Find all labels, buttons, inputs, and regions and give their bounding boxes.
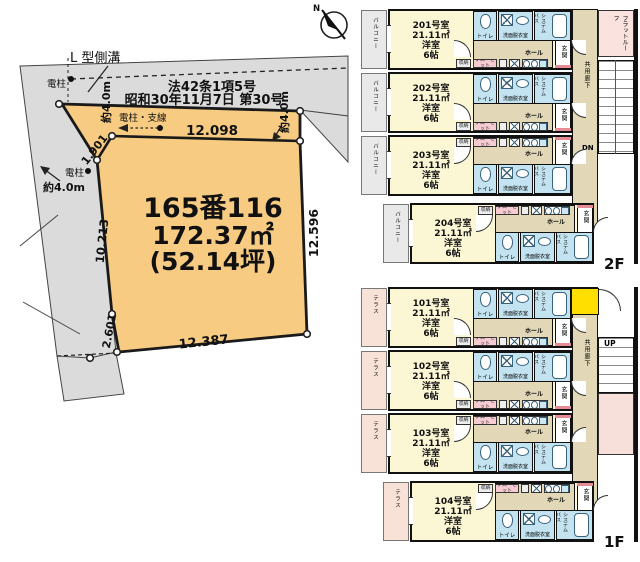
system-bath-label-line: システム <box>562 234 569 261</box>
closet-box: クローゼット <box>473 400 497 409</box>
entrance-label: 玄関 <box>580 488 590 508</box>
burner-icon <box>531 338 538 346</box>
small-storage-box <box>499 337 507 346</box>
toilet-label: トイレ <box>474 32 496 40</box>
fixture-basic <box>538 237 551 246</box>
system-bath-label-line: バス <box>533 76 540 103</box>
hall-label: ホール <box>525 389 553 398</box>
washer-pan <box>531 206 542 215</box>
washer-pan <box>531 484 542 493</box>
closet-box: クローゼット <box>495 484 519 493</box>
entrance-step <box>555 137 571 140</box>
fixture-washer <box>501 167 513 179</box>
small-storage-box <box>499 138 507 147</box>
small-storage-box <box>499 416 507 425</box>
fixture-washer <box>523 235 535 247</box>
balcony-label: バルコニー <box>369 80 379 126</box>
fixture-basic <box>516 447 529 456</box>
closet-box: クローゼット <box>473 138 497 147</box>
burner-icon <box>523 123 530 131</box>
washroom-label: 洗面脱衣室 <box>498 463 533 471</box>
door-arc[interactable] <box>599 289 621 311</box>
system-bath-label-line: システム <box>540 291 547 318</box>
storage-box: 収納 <box>478 206 493 215</box>
floorplan-sheet: N L 型側溝 電柱 法42条1項5号 昭和30年11月7日 第30号 電柱・支… <box>0 0 640 562</box>
balcony-door[interactable] <box>409 497 413 525</box>
closet-box: クローゼット <box>473 122 497 131</box>
small-storage-box <box>521 484 529 493</box>
system-bath-label: システムバス <box>535 291 547 318</box>
small-storage-box <box>521 206 529 215</box>
burner-icon <box>531 401 538 409</box>
system-bath-label-line: バス <box>555 512 562 539</box>
storage-box: 収納 <box>456 138 471 147</box>
system-bath-label: システムバス <box>557 512 569 539</box>
building-right-wall <box>634 9 638 264</box>
mini-kitchen <box>522 400 548 409</box>
balcony-door[interactable] <box>387 25 391 53</box>
burner-icon <box>523 338 530 346</box>
storage-box: 収納 <box>456 416 471 425</box>
mini-kitchen <box>522 122 548 131</box>
entrance-label: 玄関 <box>580 210 590 230</box>
entrance-step <box>577 483 593 486</box>
washer-pan <box>509 59 520 68</box>
fixture-basic <box>502 235 513 250</box>
unit-room-size: 6帖 <box>394 181 468 191</box>
fixture-washer <box>501 77 513 89</box>
kitchen-sink-icon <box>561 207 569 215</box>
entrance-step <box>555 128 571 131</box>
fixture-basic <box>480 355 491 370</box>
mini-kitchen <box>522 59 548 68</box>
fixture-basic <box>516 16 529 25</box>
mini-kitchen <box>522 138 548 147</box>
stair-rail <box>615 60 616 154</box>
system-bath-label-line: バス <box>533 354 540 381</box>
fixture-washer <box>501 14 513 26</box>
fixture-basic <box>552 77 567 101</box>
mini-kitchen <box>522 416 548 425</box>
stairs-down[interactable] <box>598 60 634 154</box>
hall-label: ホール <box>525 326 553 335</box>
washer-pan <box>509 400 520 409</box>
fixture-basic <box>480 292 491 307</box>
fixture-basic <box>502 513 513 528</box>
system-bath-label-line: バス <box>533 444 540 471</box>
small-storage-box <box>499 59 507 68</box>
burner-icon <box>523 60 530 68</box>
burner-icon <box>531 417 538 425</box>
hall-label: ホール <box>547 495 575 504</box>
mini-kitchen <box>522 337 548 346</box>
burner-icon <box>523 417 530 425</box>
system-bath-label: システムバス <box>557 234 569 261</box>
unit-room-size: 6帖 <box>416 527 490 537</box>
closet-box: クローゼット <box>473 416 497 425</box>
entrance-step <box>555 343 571 346</box>
balcony-label: バルコニー <box>369 143 379 189</box>
kitchen-sink-icon <box>539 60 547 68</box>
system-bath-label: システムバス <box>535 166 547 193</box>
floor-label: 2F <box>604 255 638 273</box>
closet-box: クローゼット <box>495 206 519 215</box>
toilet-label: トイレ <box>496 253 518 261</box>
entrance-label: 玄関 <box>558 142 568 162</box>
fixture-washer <box>523 513 535 525</box>
unit-room-type: 洋室 <box>416 517 490 527</box>
washer-pan <box>509 337 520 346</box>
storage-box: 収納 <box>456 122 471 131</box>
system-bath-label-line: バス <box>533 291 540 318</box>
kitchen-sink-icon <box>539 139 547 147</box>
closet-box: クローゼット <box>473 59 497 68</box>
terrace-label: テラス <box>369 358 379 404</box>
fixture-basic <box>552 292 567 316</box>
system-bath-label-line: バス <box>533 166 540 193</box>
kitchen-sink-icon <box>539 123 547 131</box>
kitchen-sink-icon <box>539 338 547 346</box>
fixture-basic <box>552 14 567 38</box>
fixture-washer <box>501 355 513 367</box>
fixture-basic <box>516 357 529 366</box>
toilet-label: トイレ <box>474 310 496 318</box>
fixture-washer <box>501 292 513 304</box>
small-storage-box <box>499 400 507 409</box>
floor-plans: 共用廊下フラットルーフDNバルコニー201号室21.11㎡洋室6帖トイレ洗面脱衣… <box>0 0 640 562</box>
system-bath-label-line: システム <box>540 166 547 193</box>
fixture-basic <box>480 77 491 92</box>
unit-room-size: 6帖 <box>394 459 468 469</box>
mini-kitchen <box>544 484 570 493</box>
fixture-washer <box>501 445 513 457</box>
washroom-label: 洗面脱衣室 <box>520 531 555 539</box>
unit-number: 101号室 <box>394 299 468 309</box>
fixture-basic <box>552 445 567 469</box>
burner-icon <box>523 401 530 409</box>
fixture-basic <box>574 235 589 259</box>
fixture-basic <box>574 513 589 537</box>
terrace-label: テラス <box>369 421 379 467</box>
washer-pan <box>509 416 520 425</box>
system-bath-label: システムバス <box>535 13 547 40</box>
burner-icon <box>553 485 560 493</box>
fixture-basic <box>480 14 491 29</box>
unit-number: 102号室 <box>394 362 468 372</box>
system-bath-label-line: システム <box>540 354 547 381</box>
entrance-step <box>577 205 593 208</box>
burner-icon <box>531 60 538 68</box>
fixture-basic <box>516 294 529 303</box>
washroom-label: 洗面脱衣室 <box>520 253 555 261</box>
washroom-label: 洗面脱衣室 <box>498 373 533 381</box>
kitchen-sink-icon <box>539 417 547 425</box>
balcony-door[interactable] <box>387 88 391 116</box>
washroom-label: 洗面脱衣室 <box>498 32 533 40</box>
entrance-label: 玄関 <box>558 108 568 128</box>
fixture-basic <box>552 355 567 379</box>
balcony-door[interactable] <box>409 219 413 247</box>
unit-number: 202号室 <box>394 84 468 94</box>
entrance-step <box>555 415 571 418</box>
burner-icon <box>553 207 560 215</box>
common-corridor-label: 共用廊下 <box>579 339 591 383</box>
unit-room-type: 洋室 <box>394 449 468 459</box>
washroom-label: 洗面脱衣室 <box>498 95 533 103</box>
balcony-door[interactable] <box>387 429 391 457</box>
entrance-label: 玄関 <box>558 45 568 65</box>
small-storage-box <box>499 122 507 131</box>
system-bath-label-line: システム <box>562 512 569 539</box>
flat-roof-label: フラットルーフ <box>603 15 629 53</box>
under-stair-area <box>598 393 634 455</box>
washroom-label: 洗面脱衣室 <box>498 310 533 318</box>
hall-label: ホール <box>525 111 553 120</box>
hall-label: ホール <box>547 217 575 226</box>
hall-label: ホール <box>525 48 553 57</box>
mini-kitchen <box>544 206 570 215</box>
fixture-basic <box>516 79 529 88</box>
system-bath-label: システムバス <box>535 354 547 381</box>
fixture-basic <box>480 445 491 460</box>
washroom-label: 洗面脱衣室 <box>498 185 533 193</box>
flat-roof-label-line: フラット <box>621 15 628 39</box>
terrace-label: テラス <box>369 295 379 341</box>
burner-icon <box>531 123 538 131</box>
toilet-label: トイレ <box>496 531 518 539</box>
washer-pan <box>509 138 520 147</box>
stair-direction-label: UP <box>604 339 624 348</box>
system-bath-label-line: システム <box>540 13 547 40</box>
hall-label: ホール <box>525 149 553 158</box>
burner-icon <box>545 207 552 215</box>
balcony-label: バルコニー <box>391 211 401 257</box>
system-bath-label-line: バス <box>533 13 540 40</box>
toilet-label: トイレ <box>474 185 496 193</box>
washer-pan <box>509 122 520 131</box>
fixture-basic <box>552 167 567 191</box>
balcony-label: バルコニー <box>369 17 379 63</box>
unit-room-size: 6帖 <box>416 249 490 259</box>
burner-icon <box>523 139 530 147</box>
entrance-step <box>555 65 571 68</box>
system-bath-label-line: システム <box>540 76 547 103</box>
storage-box: 収納 <box>456 59 471 68</box>
closet-box: クローゼット <box>473 337 497 346</box>
entrance-label: 玄関 <box>558 420 568 440</box>
system-bath-label: システムバス <box>535 76 547 103</box>
hall-label: ホール <box>525 427 553 436</box>
toilet-label: トイレ <box>474 95 496 103</box>
entrance-label: 玄関 <box>558 323 568 343</box>
kitchen-sink-icon <box>539 401 547 409</box>
balcony-door[interactable] <box>387 151 391 179</box>
floor-label: 1F <box>604 533 638 551</box>
burner-icon <box>531 139 538 147</box>
kitchen-sink-icon <box>561 485 569 493</box>
system-bath-label-line: バス <box>555 234 562 261</box>
fixture-basic <box>516 169 529 178</box>
unit-room-type: 洋室 <box>394 171 468 181</box>
unit-room-type: 洋室 <box>416 239 490 249</box>
toilet-label: トイレ <box>474 463 496 471</box>
burner-icon <box>545 485 552 493</box>
fixture-basic <box>480 167 491 182</box>
building-right-wall <box>634 287 638 542</box>
storage-box: 収納 <box>478 484 493 493</box>
toilet-label: トイレ <box>474 373 496 381</box>
system-bath-label-line: システム <box>540 444 547 471</box>
balcony-door[interactable] <box>387 303 391 331</box>
common-corridor-label: 共用廊下 <box>579 61 591 105</box>
entrance-step <box>555 406 571 409</box>
balcony-door[interactable] <box>387 366 391 394</box>
system-bath-label: システムバス <box>535 444 547 471</box>
unit-number: 201号室 <box>394 21 468 31</box>
storage-box: 収納 <box>456 337 471 346</box>
fixture-basic <box>538 515 551 524</box>
terrace-label: テラス <box>391 489 401 535</box>
storage-box: 収納 <box>456 400 471 409</box>
entrance-label: 玄関 <box>558 386 568 406</box>
